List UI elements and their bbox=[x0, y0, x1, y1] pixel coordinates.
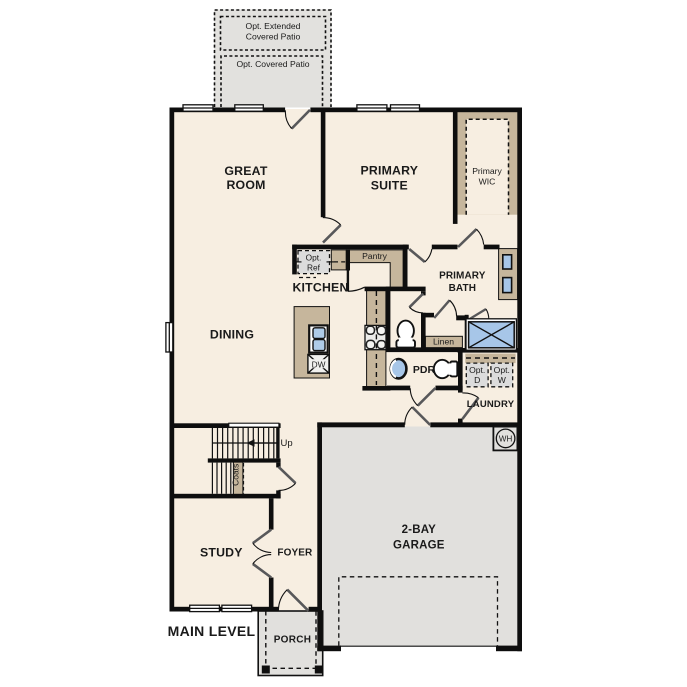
svg-text:Primary: Primary bbox=[472, 166, 502, 176]
svg-text:W: W bbox=[498, 375, 507, 385]
svg-text:Linen: Linen bbox=[433, 337, 454, 347]
svg-text:PRIMARY: PRIMARY bbox=[360, 164, 418, 178]
svg-text:FOYER: FOYER bbox=[277, 548, 313, 559]
svg-text:MAIN LEVEL: MAIN LEVEL bbox=[168, 623, 256, 639]
svg-text:Opt.: Opt. bbox=[494, 365, 510, 375]
svg-text:DW: DW bbox=[312, 359, 326, 369]
svg-text:GARAGE: GARAGE bbox=[393, 539, 445, 551]
svg-text:Opt. Extended: Opt. Extended bbox=[246, 21, 301, 31]
svg-text:SUITE: SUITE bbox=[371, 179, 408, 193]
svg-text:Covered Patio: Covered Patio bbox=[246, 32, 301, 42]
svg-text:Pantry: Pantry bbox=[362, 251, 388, 261]
svg-text:PDR: PDR bbox=[413, 364, 436, 376]
svg-text:Coats: Coats bbox=[230, 464, 240, 486]
svg-text:Opt.: Opt. bbox=[306, 252, 322, 262]
svg-text:BATH: BATH bbox=[449, 283, 476, 294]
svg-text:LAUNDRY: LAUNDRY bbox=[467, 399, 515, 410]
svg-text:2-BAY: 2-BAY bbox=[402, 524, 437, 536]
svg-text:GREAT: GREAT bbox=[224, 164, 267, 178]
svg-text:Opt. Covered Patio: Opt. Covered Patio bbox=[236, 59, 309, 69]
svg-text:KITCHEN: KITCHEN bbox=[292, 281, 348, 295]
svg-text:PRIMARY: PRIMARY bbox=[439, 271, 486, 282]
svg-text:WH: WH bbox=[499, 434, 513, 443]
svg-text:WIC: WIC bbox=[479, 176, 496, 186]
svg-text:Opt.: Opt. bbox=[469, 365, 485, 375]
svg-text:Ref: Ref bbox=[307, 262, 321, 272]
svg-text:Up: Up bbox=[281, 438, 293, 449]
svg-text:D: D bbox=[474, 375, 480, 385]
svg-text:ROOM: ROOM bbox=[226, 178, 265, 192]
svg-text:STUDY: STUDY bbox=[200, 546, 243, 560]
svg-text:DINING: DINING bbox=[210, 328, 254, 342]
svg-text:PORCH: PORCH bbox=[274, 634, 312, 645]
